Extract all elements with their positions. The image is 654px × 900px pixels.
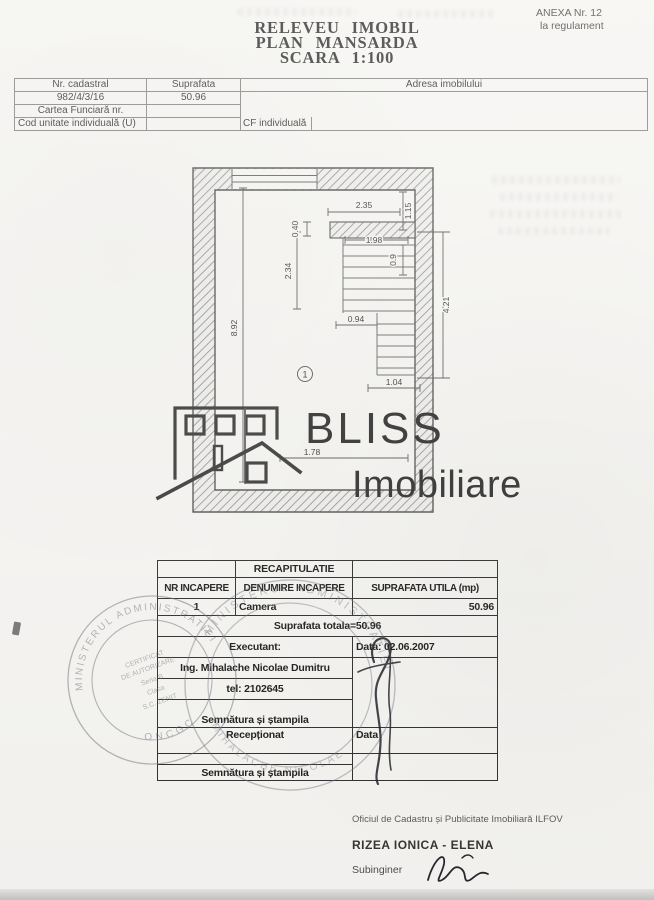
cod-unitate-label: Cod unitate individuală (U) bbox=[15, 118, 147, 131]
property-info-table: Nr. cadastral Suprafata Adresa imobilulu… bbox=[14, 78, 648, 131]
signature-stroke bbox=[428, 857, 488, 881]
cf-individuala-label: CF individuală bbox=[241, 117, 312, 130]
recap-empty-cell bbox=[353, 561, 498, 578]
dim-wall-offset: 0.40 bbox=[290, 220, 300, 237]
bleedthrough-artifact bbox=[500, 193, 618, 201]
recap-empty-cell bbox=[158, 754, 353, 765]
cod-unitate-value-cell bbox=[147, 118, 241, 131]
room-area-value: 50.96 bbox=[353, 599, 498, 616]
signature-stroke bbox=[462, 855, 473, 858]
anexa-line1: ANEXA Nr. 12 bbox=[536, 7, 604, 20]
suprafata-header: Suprafata bbox=[147, 79, 241, 92]
executant-name: Ing. Mihalache Nicolae Dumitru bbox=[158, 658, 353, 679]
anexa-line2: la regulament bbox=[540, 20, 604, 33]
dimension-labels: 2.35 1.15 0.40 1.98 0.9 2.34 0.94 4.21 8… bbox=[229, 200, 451, 457]
dim-right-top: 1.15 bbox=[403, 202, 413, 219]
dim-stair-exit: 1.04 bbox=[386, 377, 403, 387]
dim-stair-top: 0.9 bbox=[388, 254, 398, 266]
bleedthrough-artifact bbox=[398, 10, 494, 18]
recap-table: RECAPITULATIE NR INCAPERE DENUMIRE INCAP… bbox=[157, 560, 498, 781]
recap-title: RECAPITULATIE bbox=[236, 561, 353, 578]
room-number: 1 bbox=[302, 370, 307, 380]
nr-cadastral-header: Nr. cadastral bbox=[15, 79, 147, 92]
dim-left-mid: 2.34 bbox=[283, 262, 293, 279]
title-line3: SCARA 1:100 bbox=[167, 50, 507, 65]
staircase bbox=[343, 238, 415, 375]
exterior-walls bbox=[193, 168, 433, 512]
executant-label: Executant: bbox=[158, 637, 353, 658]
total-area-row: Suprafata totala=50.96 bbox=[158, 616, 498, 637]
dim-stair-run: 4.21 bbox=[441, 296, 451, 313]
semnatura-stampila-label-1: Semnătura și ștampila bbox=[158, 700, 353, 728]
interior-partition-wall bbox=[330, 222, 415, 238]
receptionat-date-label: Data bbox=[353, 728, 498, 754]
logo-word-imobiliare: Imobiliare bbox=[352, 464, 522, 506]
executant-signature-cell bbox=[353, 658, 498, 728]
recap-empty-cell bbox=[158, 561, 236, 578]
adresa-header: Adresa imobilului bbox=[241, 79, 648, 92]
scanned-document-page: ANEXA Nr. 12 la regulament RELEVEU IMOBI… bbox=[0, 0, 654, 900]
agency-logo: BLISS Imobiliare bbox=[158, 404, 522, 506]
dim-landing: 0.94 bbox=[348, 314, 365, 324]
scan-edge-mark bbox=[12, 621, 21, 635]
col-header-nr: NR INCAPERE bbox=[158, 578, 236, 599]
semnatura-stampila-label-2: Semnătura și ștampila bbox=[158, 765, 353, 781]
executant-date: Data: 02.06.2007 bbox=[353, 637, 498, 658]
room-name-value: Camera bbox=[236, 599, 353, 616]
floor-plan-drawing: 2.35 1.15 0.40 1.98 0.9 2.34 0.94 4.21 8… bbox=[140, 148, 600, 538]
adresa-cell: CF individuală bbox=[241, 92, 648, 131]
receptionat-label: Recepționat bbox=[158, 728, 353, 754]
executant-tel: tel: 2102645 bbox=[158, 679, 353, 700]
logo-house-icon bbox=[158, 408, 300, 498]
dim-room-length: 8.92 bbox=[229, 319, 239, 336]
table-row: 1 Camera 50.96 bbox=[158, 599, 498, 616]
logo-word-bliss: BLISS bbox=[305, 404, 445, 453]
cartea-funciara-value-cell bbox=[147, 105, 241, 118]
window-opening bbox=[232, 169, 317, 189]
bleedthrough-artifact bbox=[498, 227, 610, 235]
receptionat-signature-cell bbox=[353, 754, 498, 781]
room-nr-value: 1 bbox=[158, 599, 236, 616]
suprafata-value: 50.96 bbox=[147, 92, 241, 105]
nr-cadastral-value: 982/4/3/16 bbox=[15, 92, 147, 105]
inspector-role: Subinginer bbox=[352, 864, 402, 876]
bleedthrough-artifact bbox=[492, 176, 620, 184]
room-number-marker: 1 bbox=[298, 367, 313, 382]
cartea-funciara-label: Cartea Funciară nr. bbox=[15, 105, 147, 118]
dim-stair-width: 1.98 bbox=[366, 235, 383, 245]
dimension-lines bbox=[239, 188, 450, 482]
bleedthrough-artifact bbox=[490, 210, 622, 218]
anexa-note: ANEXA Nr. 12 la regulament bbox=[536, 7, 604, 33]
inspector-name: RIZEA IONICA - ELENA bbox=[352, 838, 494, 852]
dim-room-width: 1.78 bbox=[304, 447, 321, 457]
bleedthrough-artifact bbox=[238, 8, 356, 16]
col-header-suprafata: SUPRAFATA UTILA (mp) bbox=[353, 578, 498, 599]
dim-partition-width: 2.35 bbox=[356, 200, 373, 210]
cadastre-office-line: Oficiul de Cadastru și Publicitate Imobi… bbox=[352, 814, 563, 825]
page-title: RELEVEU IMOBIL PLAN MANSARDA SCARA 1:100 bbox=[167, 20, 507, 65]
col-header-denumire: DENUMIRE INCAPERE bbox=[236, 578, 353, 599]
scan-bottom-strip bbox=[0, 889, 654, 900]
